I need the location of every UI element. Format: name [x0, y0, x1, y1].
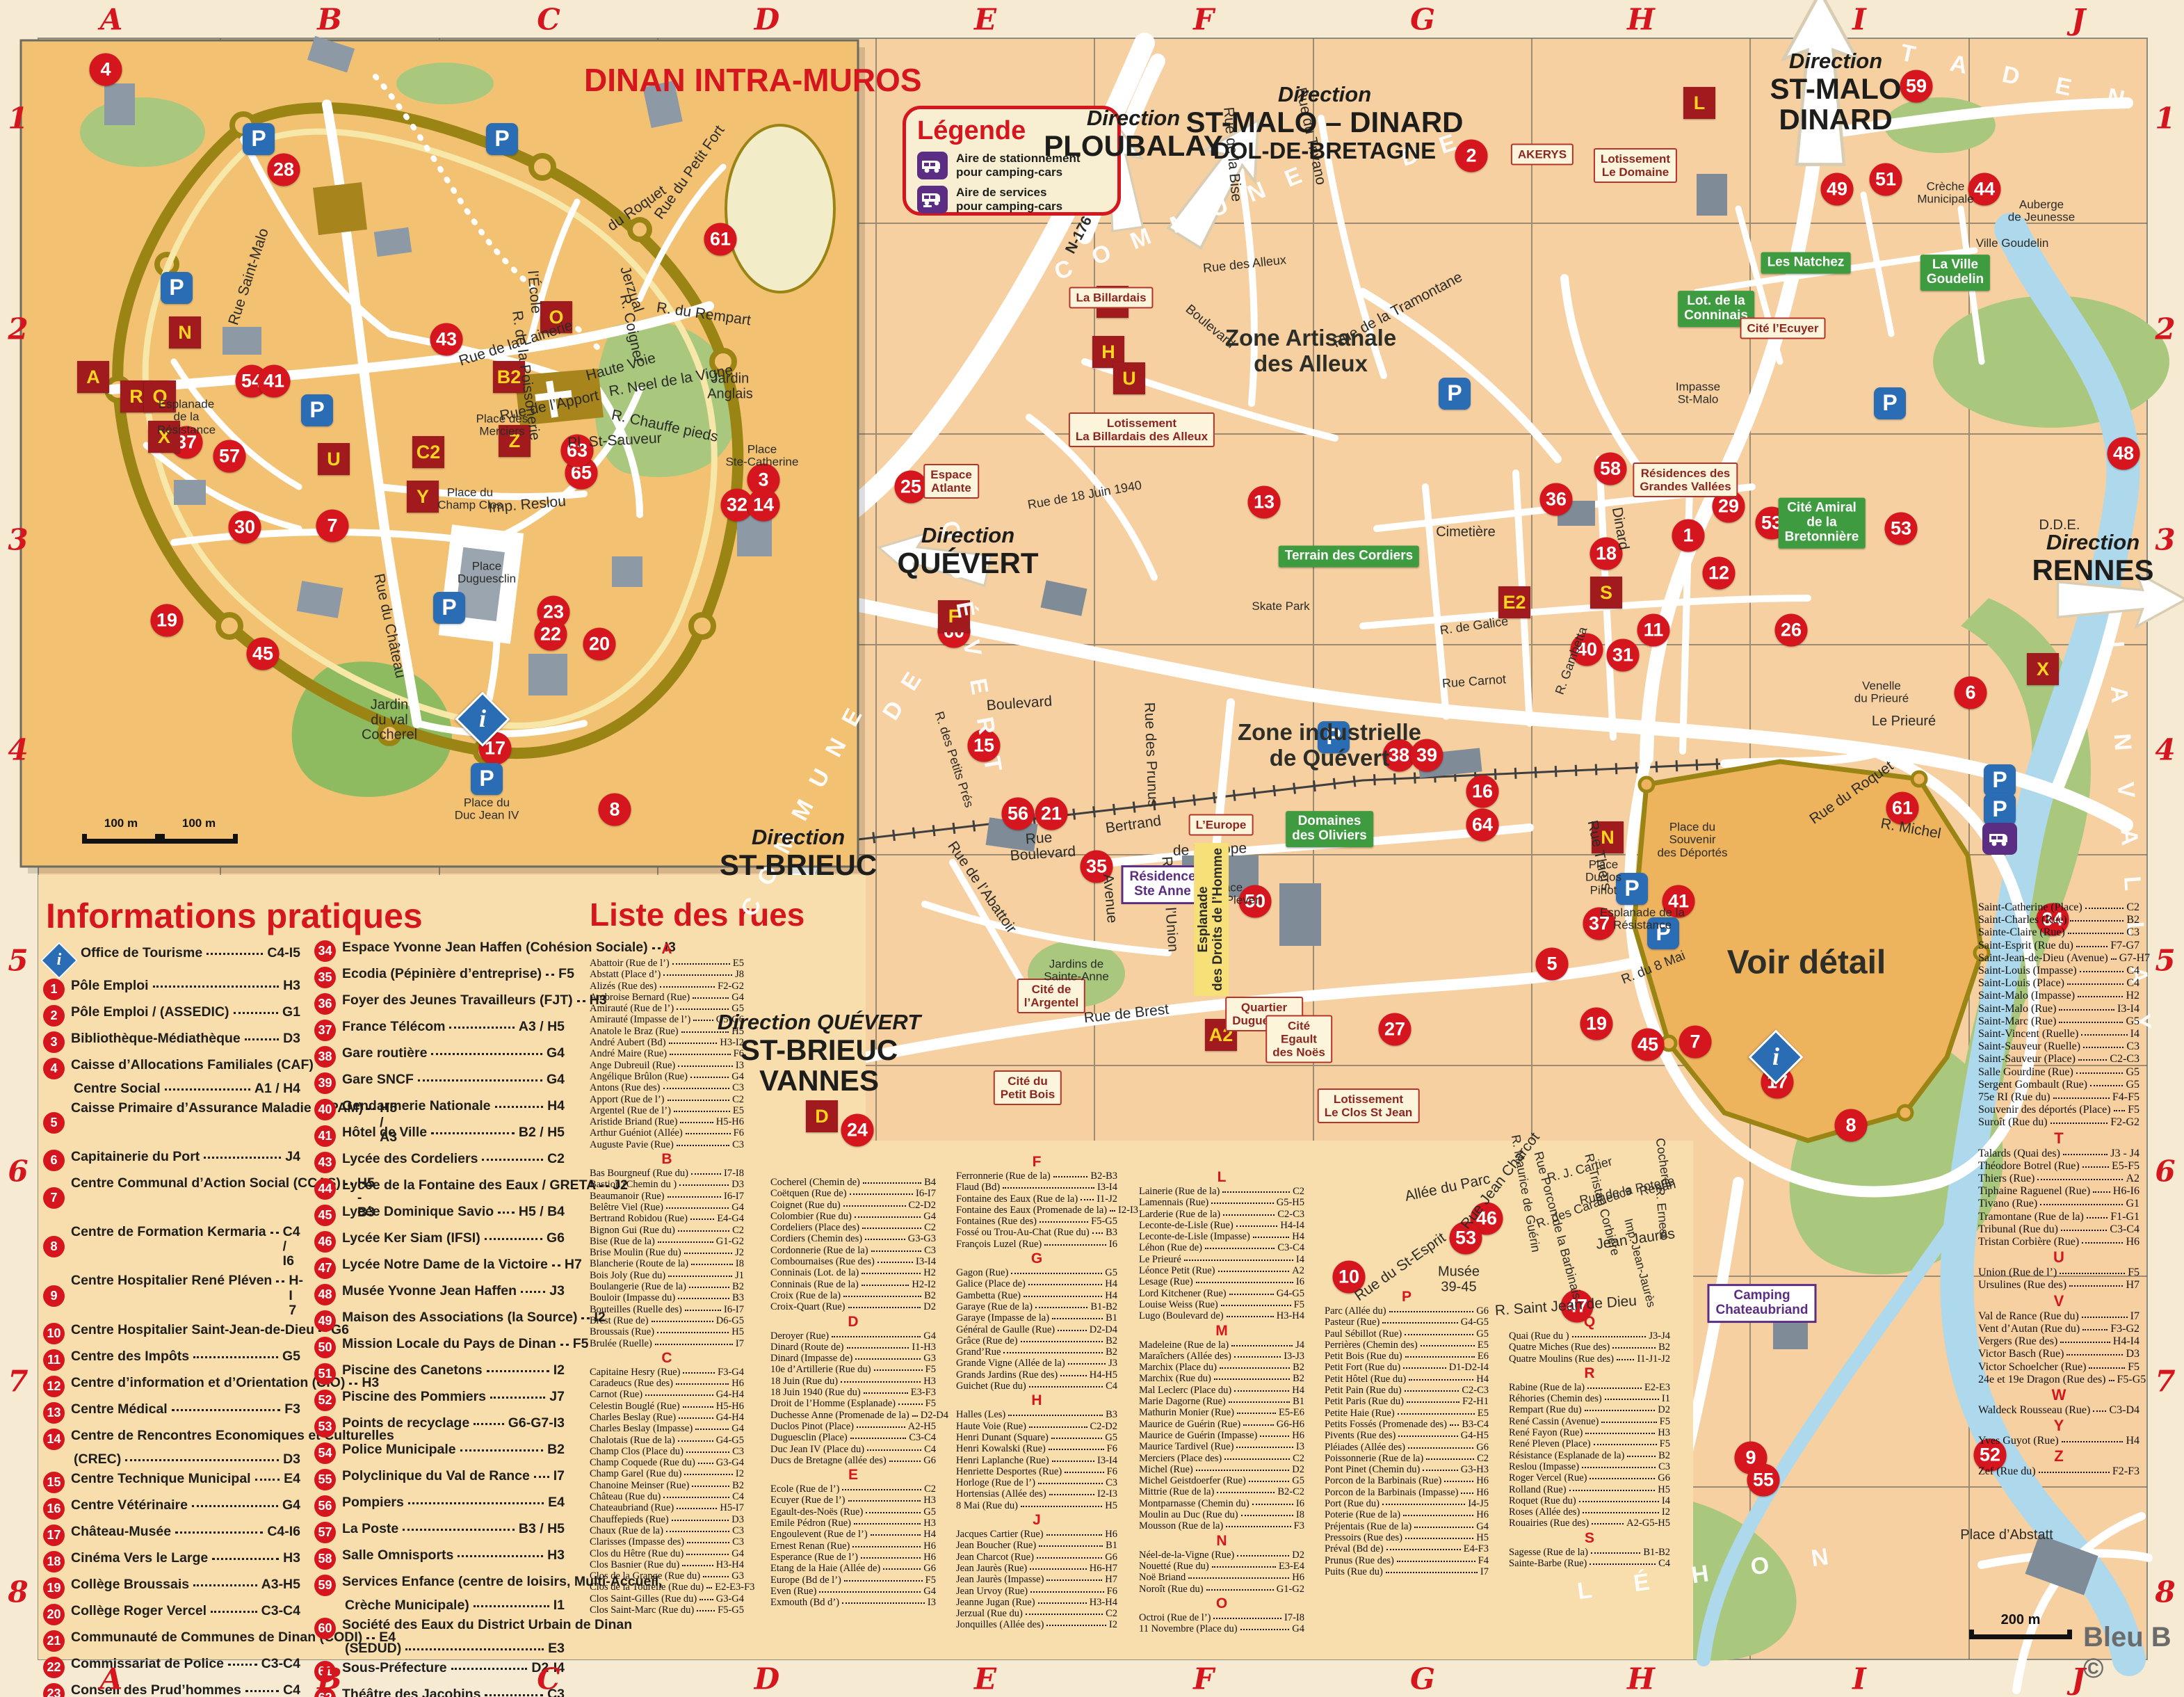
street-entry-ref: E4-G4 [717, 1213, 744, 1224]
street-entry: Horloge (Rue de l’)C3 [956, 1477, 1117, 1488]
dot-leader [1260, 1435, 1289, 1437]
grid-number-5: 5 [8, 944, 28, 978]
street-entry-ref: H6 [1476, 1509, 1489, 1520]
street-entry: Abattoir (Rue de l’)E5 [590, 958, 744, 969]
dot-leader [1405, 1390, 1459, 1392]
street-entry-ref: H5-H6 [716, 1116, 744, 1127]
street-entry-name: Bise (Rue de la) [590, 1236, 655, 1247]
street-entry: Anatole le Braz (Rue)H5 [590, 1026, 744, 1037]
street-entry: Michel Geistdoerfer (Rue)G5 [1139, 1475, 1304, 1486]
street-entry-ref: C3 [1106, 1477, 1117, 1488]
grid-letter-B: B [317, 1662, 342, 1696]
street-entry-name: Hortensias (Allée des) [956, 1488, 1046, 1499]
street-entry-name: Général de Gaulle (Rue) [956, 1324, 1055, 1335]
street-entry: Clos Saint-Gilles (Rue du)G3-G4 [590, 1593, 744, 1604]
scale-label-inset-1: 100 m [104, 817, 138, 830]
dot-leader [683, 1406, 713, 1408]
dot-leader [692, 1486, 729, 1487]
street-entry: Petit Pain (Rue du)C2-C3 [1325, 1385, 1489, 1396]
street-entry-name: Saint-Louis (Place) [1978, 977, 2064, 990]
street-entry-ref: H7 [1105, 1574, 1117, 1585]
street-entry: Bas Bourgneuf (Rue du)I7-I8 [590, 1168, 744, 1179]
dot-leader [848, 1500, 921, 1502]
street-entry-name: Rabine (Rue de la) [1509, 1382, 1585, 1393]
street-entry-ref: H4-I4 [2113, 1335, 2139, 1348]
street-entry-name: Celestin Bouglé (Rue) [590, 1401, 680, 1412]
street-entry: Fontaine des Eaux (Promenade de la)I2-I3 [956, 1205, 1117, 1216]
dot-leader [1214, 1378, 1290, 1380]
street-entry: Haute Voie (Rue)C2-D2 [956, 1421, 1117, 1432]
dot-leader [855, 1358, 921, 1360]
street-entry: Chalotais (Rue de la)G4-G5 [590, 1435, 744, 1446]
street-entry-ref: E5-E6 [1279, 1407, 1304, 1418]
dot-leader [1053, 1176, 1088, 1177]
street-entry-name: Michel Geistdoerfer (Rue) [1139, 1475, 1246, 1486]
street-entry-ref: I3 [928, 1597, 936, 1608]
rues-section-header-O: O [1139, 1595, 1304, 1612]
street-entry: Argentel (Rue de l’)E5 [590, 1105, 744, 1116]
street-entry: Porcon de la Barbinais (Rue)H6 [1325, 1475, 1489, 1486]
grid-letter-B: B [317, 3, 342, 37]
street-entry: Préval (Bd de)E4-F3 [1325, 1543, 1489, 1554]
street-entry-name: Ursulines (Rue des) [1978, 1279, 2066, 1292]
dot-leader [2039, 1472, 2110, 1473]
street-entry-ref: D2-D4 [921, 1410, 948, 1421]
grid-number-7: 7 [2155, 1365, 2175, 1399]
street-entry-name: Even (Rue) [770, 1586, 816, 1597]
dot-leader [866, 1512, 921, 1513]
street-entry: Champ Clos (Place du)C3 [590, 1446, 744, 1457]
street-entry: Boulangerie (Rue de la)B2 [590, 1281, 744, 1292]
street-entry-ref: E3-F3 [911, 1387, 936, 1398]
rues-column-4: LLainerie (Rue de la)C2Lamennais (Rue)G5… [1139, 1168, 1304, 1634]
street-entry-name: Victor Schoelcher (Rue) [1978, 1361, 2086, 1374]
rues-section-header-L: L [1139, 1168, 1304, 1186]
street-entry-name: Horloge (Rue de l’) [956, 1477, 1035, 1488]
street-entry: 10e d’Artillerie (Rue du)F5 [770, 1364, 936, 1375]
street-entry: Petits Fossés (Promenade des)B3-C4 [1325, 1419, 1489, 1430]
street-entry: Quatre Miches (Rue des)B2 [1509, 1342, 1670, 1353]
street-entry: Mittrie (Rue de la)B2-C2 [1139, 1486, 1304, 1497]
street-entry: Jean Charcot (Rue)G6 [956, 1552, 1117, 1563]
dot-leader [658, 1241, 713, 1243]
dot-leader [912, 1415, 918, 1417]
dot-leader [1585, 1433, 1655, 1434]
street-entry-name: Maurice de Guérin (Impasse) [1139, 1430, 1257, 1441]
street-entry-name: Duclos Pinot (Place) [770, 1421, 854, 1432]
dot-leader [679, 1417, 713, 1419]
street-entry-ref: I6 [1296, 1498, 1304, 1509]
street-entry: Saint-Louis (Impasse)C4 [1978, 965, 2139, 977]
street-entry-ref: I3-J3 [1284, 1351, 1304, 1362]
street-entry-name: Leconte-de-Lisle (Rue) [1139, 1220, 1233, 1231]
street-entry-ref: I3-I4 [1097, 1182, 1117, 1193]
rues-section-header-P: P [1325, 1288, 1489, 1305]
street-entry: Jeanne Jugan (Rue)H3-H4 [956, 1597, 1117, 1608]
dot-leader [1627, 1456, 1656, 1457]
street-entry: Saint-Catherine (Place)C2 [1978, 901, 2139, 914]
street-entry-ref: G4 [731, 1071, 744, 1082]
dot-leader [666, 1531, 729, 1532]
grid-number-3: 3 [2155, 523, 2175, 557]
street-entry: Duc Jean IV (Place du)C4 [770, 1444, 936, 1455]
street-entry: Port (Rue du)I4-J5 [1325, 1498, 1489, 1509]
dot-leader [2080, 971, 2124, 972]
street-entry-name: Garaye (Rue de la) [956, 1301, 1033, 1312]
street-entry: Alizés (Rue des)F2-G2 [590, 981, 744, 992]
street-entry: Celestin Bouglé (Rue)H5-H6 [590, 1401, 744, 1412]
street-entry-ref: G1 [2126, 1198, 2139, 1210]
street-entry-name: Fontaines (Rue des) [956, 1216, 1037, 1227]
street-entry-ref: I2-I3 [1097, 1488, 1117, 1499]
street-entry-name: Cocherel (Chemin de) [770, 1177, 860, 1188]
street-entry: Brulée (Ruelle)I7 [590, 1338, 744, 1349]
dot-leader [698, 1463, 713, 1464]
dot-leader [1008, 1415, 1103, 1416]
dot-leader [693, 997, 729, 999]
street-entry-ref: B1 [1293, 1396, 1304, 1407]
dot-leader [2076, 1072, 2124, 1074]
street-entry: Exmouth (Bd d’)I3 [770, 1597, 936, 1608]
street-entry-name: Château (Rue du) [590, 1491, 661, 1502]
street-entry: Grâce (Rue de)B2 [956, 1335, 1117, 1346]
street-entry-ref: C2 [1477, 1453, 1489, 1464]
street-entry-ref: I3 [1296, 1441, 1304, 1452]
street-entry: Noroît (Rue du)G1-G2 [1139, 1584, 1304, 1595]
street-entry-name: Henri Dunant (Square) [956, 1432, 1049, 1443]
grid-number-4: 4 [2155, 733, 2175, 767]
street-entry: Général de Gaulle (Rue)D2-D4 [956, 1324, 1117, 1335]
dot-leader [666, 1207, 729, 1209]
street-entry-ref: C2 [732, 1225, 744, 1236]
dot-leader [1386, 1572, 1478, 1573]
street-entry-name: Marchix (Rue du) [1139, 1373, 1211, 1384]
dot-leader [1029, 1386, 1103, 1388]
street-entry-name: Conninais (Lot. de la) [770, 1267, 859, 1278]
grid-number-2: 2 [2155, 312, 2175, 346]
street-entry-ref: F7-G7 [2110, 940, 2139, 952]
street-entry-name: Fossé ou Trou-Au-Chat (Rue du) [956, 1227, 1090, 1238]
street-entry: Quatre Moulins (Rue des)I1-J1-J2 [1509, 1353, 1670, 1365]
rues-section-header-N: N [1139, 1532, 1304, 1550]
dot-leader [1234, 1356, 1281, 1358]
street-entry-ref: E5 [733, 1105, 744, 1116]
street-entry-name: Clos Saint-Marc (Rue du) [590, 1604, 694, 1616]
street-entry-name: 18 Juin (Rue du) [770, 1376, 838, 1387]
street-entry: Fontaine des Eaux (Rue de la)I1-J2 [956, 1193, 1117, 1205]
street-entry-ref: I6 [1109, 1239, 1117, 1250]
dot-leader [1222, 1191, 1290, 1193]
dot-leader [1110, 1210, 1115, 1212]
street-entry-ref: G5 [1105, 1267, 1117, 1278]
street-entry-ref: I6-I7 [916, 1188, 936, 1199]
street-entry-ref: F6 [1107, 1586, 1117, 1597]
street-entry-name: Léonce Petit (Rue) [1139, 1265, 1215, 1276]
street-entry-ref: F5 [2128, 1361, 2139, 1374]
street-entry-name: Gambetta (Rue) [956, 1290, 1021, 1301]
dinan-city-map: DINAN INTRA-MUROS Légende Aire de statio… [0, 0, 2184, 1697]
street-entry: Léonce Petit (Rue)A2 [1139, 1265, 1304, 1276]
street-entry-ref: H3-H4 [716, 1559, 744, 1570]
street-entry-name: Etang de la Haie (Allée de) [770, 1563, 880, 1574]
street-entry-ref: G1-G2 [1277, 1584, 1304, 1595]
street-entry: Saint-Malo (Impasse)H2 [1978, 990, 2139, 1002]
dot-leader [1414, 1527, 1473, 1528]
street-entry: Emile Pédron (Rue)H3 [770, 1518, 936, 1529]
street-entry-ref: I1-J1-J2 [1637, 1353, 1670, 1365]
street-entry-name: Cordonnerie (Rue de la) [770, 1245, 868, 1256]
street-entry-name: Flaud (Bd) [956, 1182, 1000, 1193]
street-entry-name: Capitaine Hesry (Rue) [590, 1367, 680, 1378]
dot-leader [2053, 1097, 2110, 1099]
street-entry-ref: F2-G2 [2110, 1116, 2139, 1129]
street-entry-ref: H5 [1476, 1532, 1489, 1543]
street-entry: Guichet (Rue du)C4 [956, 1381, 1117, 1392]
rues-section-header-Q: Q [1509, 1313, 1670, 1330]
street-entry: Bouteilles (Ruelle des)I6-I7 [590, 1304, 744, 1315]
dot-leader [850, 1438, 907, 1439]
street-entry-name: Puits (Rue du) [1325, 1566, 1383, 1577]
street-entry: Duchesse Anne (Promenade de la)D2-D4 [770, 1410, 936, 1421]
dot-leader [1579, 1501, 1659, 1502]
street-entry-name: Roquet (Rue du) [1509, 1495, 1576, 1506]
dot-leader [1049, 1449, 1104, 1450]
street-entry-name: Jonquilles (Allée des) [956, 1619, 1044, 1630]
street-entry-name: Saint-Sauveur (Place) [1978, 1053, 2076, 1065]
dot-leader [1046, 1625, 1106, 1626]
street-entry-name: Saint-Charles (Rue) [1978, 914, 2067, 926]
street-entry-name: Auguste Pavie (Rue) [590, 1139, 674, 1150]
street-entry-name: Anatole le Braz (Rue) [590, 1026, 679, 1037]
grid-letter-D: D [754, 1662, 779, 1696]
dot-leader [681, 1031, 729, 1033]
street-entry-name: Tivano (Rue) [1978, 1198, 2037, 1210]
street-entry: Ambroise Bernard (Rue)G4 [590, 992, 744, 1003]
street-entry-name: Vergers (Rue des) [1978, 1335, 2057, 1348]
street-entry-name: Combournaises (Rue des) [770, 1256, 875, 1267]
dot-leader [652, 1321, 713, 1322]
street-entry: Europe (Bd de l’)F5 [770, 1575, 936, 1586]
street-entry-ref: I2 [1662, 1506, 1670, 1518]
street-entry-name: Petit Pain (Rue du) [1325, 1385, 1402, 1396]
dot-leader [863, 1182, 921, 1184]
dot-leader [867, 1449, 921, 1451]
street-entry-ref: G3-G4 [716, 1593, 744, 1604]
street-entry-name: Lord Kitchener (Rue) [1139, 1288, 1227, 1299]
street-entry-name: Boulangerie (Rue de la) [590, 1281, 686, 1292]
street-entry-ref: I4-J5 [1468, 1498, 1489, 1509]
street-entry-ref: H3 [923, 1495, 936, 1506]
street-entry: Cordiers (Chemin des)G3-G3 [770, 1233, 936, 1244]
dot-leader [1038, 1602, 1087, 1604]
dot-leader [1450, 1424, 1459, 1426]
dot-leader [842, 1602, 925, 1604]
street-entry-ref: C3 [732, 1139, 744, 1150]
street-entry-name: Garaye (Impasse de la) [956, 1312, 1049, 1324]
dot-leader [689, 1287, 729, 1288]
dot-leader [678, 1298, 729, 1299]
street-entry: Arthur Guéniot (Allée)F6 [590, 1127, 744, 1139]
rues-section-header-Y: Y [1978, 1417, 2139, 1435]
dot-leader [854, 1523, 921, 1525]
street-entry-ref: H6 [1476, 1475, 1489, 1486]
street-entry-name: Tribunal (Rue du) [1978, 1223, 2058, 1236]
street-entry-name: Rempart (Rue du) [1509, 1404, 1582, 1415]
street-entry-name: Pasteur (Rue) [1325, 1317, 1380, 1328]
street-entry: Champ Garel (Rue du)I2 [590, 1468, 744, 1479]
street-entry-name: René Cassin (Avenue) [1509, 1416, 1599, 1427]
street-entry-name: Maurice de Guérin (Rue) [1139, 1419, 1240, 1430]
street-entry-name: Vent d’Autan (Rue du) [1978, 1323, 2080, 1335]
street-entry: Conninais (Lot. de la)H2 [770, 1267, 936, 1278]
street-entry: Michel (Rue)D2 [1139, 1464, 1304, 1475]
street-entry-ref: A2 [1292, 1265, 1304, 1276]
dot-leader [865, 1239, 905, 1240]
street-entry-name: Bignon Gui (Rue du) [590, 1225, 675, 1236]
street-entry-name: Bouloir (Impasse du) [590, 1292, 675, 1303]
street-entry-ref: J8 [735, 969, 744, 980]
dot-leader [1217, 1492, 1275, 1493]
dot-leader [683, 1372, 715, 1374]
dot-leader [883, 1568, 921, 1570]
street-entry: Pont Pinet (Chemin du)G3-H3 [1325, 1464, 1489, 1475]
street-entry-name: Roger Vercel (Rue) [1509, 1472, 1587, 1483]
street-entry: Mathurin Monier (Rue)E5-E6 [1139, 1407, 1304, 1418]
street-entry: Waldeck Rousseau (Rue)C3-D4 [1978, 1404, 2139, 1417]
street-entry-ref: H3 [923, 1376, 936, 1387]
street-entry-name: Porcon de la Barbinais (Impasse) [1325, 1487, 1458, 1498]
street-entry: Larderie (Rue de la)C2-C3 [1139, 1209, 1304, 1220]
street-entry: Clos Saint-Marc (Rue du)F5-G5 [590, 1604, 744, 1616]
dot-leader [2068, 933, 2124, 934]
street-entry-name: Duguesclin (Place) [770, 1432, 848, 1443]
street-entry: Pivents (Rue des)G4-H5 [1325, 1430, 1489, 1441]
dot-leader [663, 974, 732, 976]
street-entry: René Pleven (Place)F5 [1509, 1438, 1670, 1449]
street-entry-name: Amirauté (Rue de l’) [590, 1003, 674, 1014]
street-entry-ref: F5-G5 [718, 1604, 744, 1616]
dot-leader [871, 1534, 921, 1536]
street-entry-name: Saint-Malo (Impasse) [1978, 990, 2075, 1002]
grid-letter-C: C [537, 3, 560, 37]
street-entry-name: Petit Bois (Rue du) [1325, 1351, 1402, 1362]
street-entry: Saint-Sauveur (Ruelle)C3 [1978, 1040, 2139, 1053]
street-entry-ref: I2 [736, 1468, 744, 1479]
street-entry-ref: C3 [1658, 1461, 1670, 1472]
dot-leader [1220, 1367, 1290, 1369]
street-entry: Tramontane (Rue de la)F1-G1 [1978, 1211, 2139, 1223]
dot-leader [1617, 1359, 1634, 1360]
street-entry: Sainte-Barbe (Rue)C4 [1509, 1558, 1670, 1569]
street-entry-ref: I2 [1109, 1619, 1117, 1630]
street-entry-ref: I4 [1296, 1254, 1304, 1265]
dot-leader [2081, 1034, 2127, 1036]
dot-leader [850, 1193, 913, 1195]
street-entry-ref: D2 [1292, 1550, 1304, 1561]
street-entry-name: Broussais (Rue) [590, 1326, 654, 1337]
street-entry-ref: E4-F3 [1464, 1543, 1489, 1554]
street-entry-ref: F5 [2128, 1266, 2139, 1279]
street-entry-name: Préval (Bd de) [1325, 1543, 1384, 1554]
street-entry: 18 Juin (Rue du)H3 [770, 1376, 936, 1387]
street-entry: Puits (Rue du)I7 [1325, 1566, 1489, 1577]
street-entry: Moulin au Duc (Rue du)I8 [1139, 1509, 1304, 1520]
street-entry-name: Salle Gourdine (Rue) [1978, 1066, 2073, 1079]
street-entry: Apport (Rue de l’)C2 [590, 1094, 744, 1105]
street-entry-ref: G6 [923, 1455, 936, 1466]
street-entry-name: Droit de l’Homme (Esplanade) [770, 1398, 896, 1409]
street-entry-name: Saint-Marc (Rue) [1978, 1015, 2056, 1028]
street-entry-ref: G6 [1658, 1472, 1670, 1483]
street-entry-name: Coignet (Rue du) [770, 1200, 841, 1211]
street-entry-ref: B2 [924, 1290, 936, 1301]
rues-section-header-M: M [1139, 1322, 1304, 1340]
dot-leader [1231, 1345, 1293, 1346]
street-entry-ref: D3 [731, 1179, 744, 1190]
rues-column-6: QQuai (Rue du )J3-J4Quatre Miches (Rue d… [1509, 1313, 1670, 1569]
street-entry-name: Ange Dubreuil (Rue) [590, 1060, 675, 1071]
dot-leader [685, 1310, 721, 1311]
street-entry: Jerzual (Rue du)C2 [956, 1608, 1117, 1619]
street-entry: Bastion (Chemin du )D3 [590, 1179, 744, 1190]
street-entry: Charles Beslay (Rue)G4-H4 [590, 1412, 744, 1423]
street-entry-ref: H5 [1105, 1500, 1117, 1511]
street-entry: Saint-Esprit (Rue du)F7-G7 [1978, 940, 2139, 952]
street-entry-name: Rolland (Rue) [1509, 1484, 1567, 1495]
street-entry-name: Charles Beslay (Rue) [590, 1412, 676, 1423]
street-entry-name: Porcon de la Barbinais (Rue) [1325, 1475, 1441, 1486]
street-entry-name: Octroi (Rue de l’) [1139, 1612, 1211, 1623]
street-entry-ref: J2 [735, 1247, 744, 1258]
dot-leader [1461, 1493, 1473, 1494]
street-entry: Coëtquen (Rue de)I6-I7 [770, 1188, 936, 1199]
street-entry: Henriette Desportes (Rue)F6 [956, 1466, 1117, 1477]
dot-leader [1051, 1438, 1102, 1439]
street-entry-ref: H6-I6 [2113, 1185, 2139, 1198]
street-entry-name: Mathurin Monier (Rue) [1139, 1407, 1234, 1418]
dot-leader [1386, 1549, 1461, 1550]
street-entry-ref: F5 [1294, 1299, 1304, 1310]
street-entry-name: Marchix (Place du) [1139, 1362, 1217, 1373]
dot-leader [1252, 1504, 1293, 1505]
dot-leader [1397, 1561, 1475, 1562]
street-entry-ref: C4 [2126, 977, 2139, 990]
street-entry-ref: H3 [923, 1518, 936, 1529]
street-entry: Brise Moulin (Rue du)J2 [590, 1247, 744, 1258]
street-entry: Le PrieuréI4 [1139, 1254, 1304, 1265]
street-entry-name: Petite Haie (Rue) [1325, 1408, 1395, 1419]
dot-leader [1044, 1244, 1106, 1246]
dot-leader [1188, 1577, 1289, 1579]
street-entry-ref: C4 [924, 1444, 936, 1455]
dot-leader [1237, 1555, 1289, 1557]
grid-number-8: 8 [2155, 1575, 2175, 1609]
dot-leader [2070, 920, 2124, 922]
street-entry: Droit de l’Homme (Esplanade)F5 [770, 1398, 936, 1409]
street-entry-name: Jacques Cartier (Rue) [956, 1529, 1044, 1540]
street-entry: Caradeucs (Rue des)H6 [590, 1378, 744, 1389]
street-entry: Sainte-Claire (Rue)C3 [1978, 926, 2139, 939]
street-entry: Rabine (Rue de la)E2-E3 [1509, 1382, 1670, 1393]
street-entry: Jacques Cartier (Rue)H6 [956, 1529, 1117, 1540]
street-entry-name: Galice (Place de) [956, 1278, 1026, 1289]
street-entry-name: Henriette Desportes (Rue) [956, 1466, 1062, 1477]
street-entry-name: Saint-Esprit (Rue du) [1978, 940, 2073, 952]
rues-section-header-S: S [1509, 1529, 1670, 1547]
street-entry-name: 10e d’Artillerie (Rue du) [770, 1364, 871, 1375]
dot-leader [2082, 1317, 2128, 1318]
street-entry-name: Conninais (Rue de la) [770, 1279, 859, 1290]
